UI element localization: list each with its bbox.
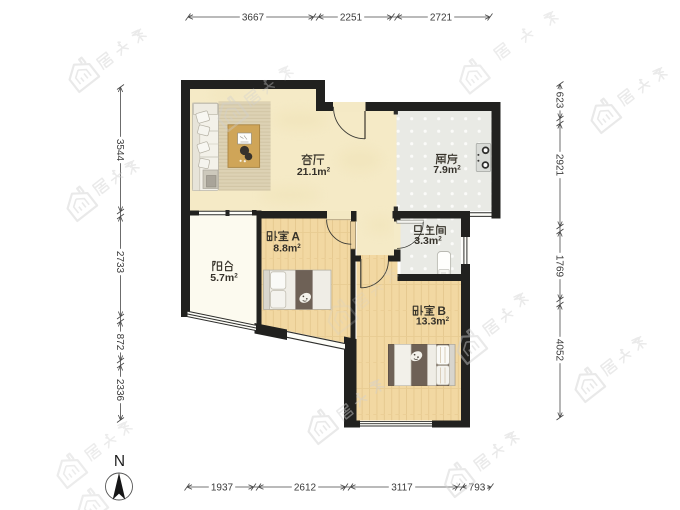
svg-text:A: A: [291, 229, 300, 243]
svg-text:N: N: [114, 453, 125, 470]
svg-text:2336: 2336: [114, 379, 125, 402]
svg-text:3.3m2: 3.3m2: [414, 235, 442, 247]
svg-text:7.9m2: 7.9m2: [433, 164, 461, 176]
svg-text:2251: 2251: [340, 13, 363, 24]
svg-text:872: 872: [114, 334, 125, 351]
svg-text:5.7m2: 5.7m2: [210, 272, 238, 284]
svg-text:8.8m2: 8.8m2: [273, 243, 301, 255]
svg-text:3544: 3544: [114, 139, 125, 162]
svg-text:1769: 1769: [554, 255, 565, 278]
svg-text:623: 623: [554, 92, 565, 109]
svg-text:2721: 2721: [430, 13, 453, 24]
svg-text:2612: 2612: [294, 483, 317, 494]
svg-text:3117: 3117: [391, 483, 413, 494]
svg-text:13.3m2: 13.3m2: [416, 316, 450, 328]
svg-text:2733: 2733: [114, 251, 125, 274]
svg-text:4052: 4052: [554, 339, 565, 362]
svg-text:2921: 2921: [554, 154, 565, 177]
svg-text:1937: 1937: [211, 483, 234, 494]
svg-text:3667: 3667: [242, 13, 265, 24]
svg-text:21.1m2: 21.1m2: [297, 166, 331, 178]
